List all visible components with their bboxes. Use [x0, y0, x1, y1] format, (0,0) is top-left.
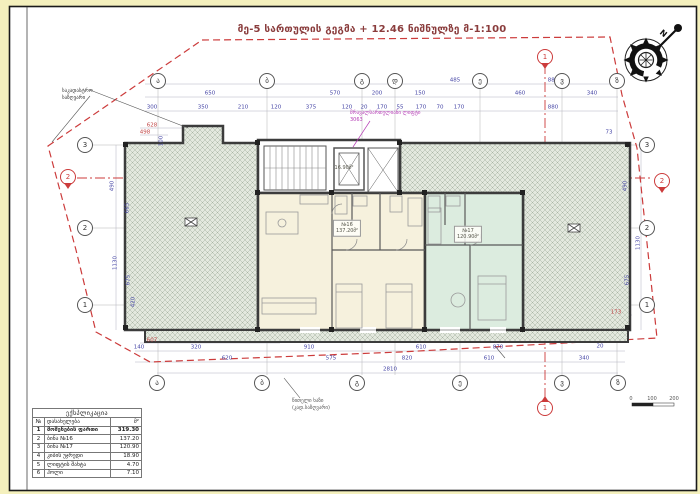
- dimension-label: 880: [548, 105, 559, 111]
- table-row: 4კიბის უჯრედი18.90: [33, 452, 142, 461]
- axis-bubble-ვ: ვ: [554, 73, 570, 89]
- room-area: 16.90მ²: [335, 165, 354, 171]
- table-row: 2ბინა №16137.20: [33, 435, 142, 444]
- table-cell: 2: [33, 435, 45, 444]
- dimension-label: 20: [597, 344, 604, 350]
- axis-bubble-2: 2: [639, 220, 655, 236]
- dimension-label: 150: [415, 91, 426, 97]
- table-title: ექსპლიკაცია: [33, 409, 142, 418]
- room-area: 137.20მ²: [336, 228, 358, 234]
- elevator-note-line2: 3063: [350, 117, 420, 124]
- axis-bubble-3: 3: [639, 137, 655, 153]
- dimension-label: 70: [437, 105, 444, 111]
- dimension-label: 620: [222, 356, 233, 362]
- cadastral-boundary-label: საკადასტრო საზღვარი: [62, 88, 93, 101]
- table-header-area: მ²: [111, 418, 142, 427]
- table-cell: 18.90: [111, 452, 142, 461]
- table-cell: 6: [33, 469, 45, 478]
- axis-bubble-1: 1: [77, 297, 93, 313]
- room-label: 16.90მ²: [333, 164, 356, 172]
- table-header-no: №: [33, 418, 45, 427]
- dimension-label: 1130: [636, 236, 642, 250]
- axis-bubble-2: 2: [77, 220, 93, 236]
- dimension-label: 490: [110, 181, 116, 192]
- red-line-label-line2: (კად.საზღვარი): [292, 405, 330, 412]
- dimension-label: 610: [416, 345, 427, 351]
- dimension-label: 140: [134, 345, 145, 351]
- dimension-label: 1130: [113, 256, 119, 270]
- red-line-label: წითელი ხაზი (კად.საზღვარი): [292, 398, 330, 411]
- dimension-label: 675: [625, 275, 631, 286]
- table-header-name: დასახელება: [45, 418, 111, 427]
- axis-bubble-ე: ე: [472, 73, 488, 89]
- table-cell: 137.20: [111, 435, 142, 444]
- axis-bubble-ე: ე: [452, 375, 468, 391]
- explication-table: ექსპლიკაცია № დასახელება მ² 1მოშენების ფ…: [32, 408, 142, 478]
- axis-bubble-3: 3: [77, 137, 93, 153]
- dimension-label: 170: [416, 105, 427, 111]
- dimension-label: 485: [450, 78, 461, 84]
- axis-bubble-ბ: ბ: [259, 73, 275, 89]
- table-cell: ლიფტის შახტა: [45, 461, 111, 470]
- room-label: №17120.90მ²: [454, 226, 482, 243]
- dimension-label: 340: [579, 356, 590, 362]
- label-overlay: მე-5 სართულის გეგმა + 12.46 ნიშნულზე მ-1…: [0, 0, 700, 494]
- dimension-label: 420: [131, 297, 137, 308]
- table-cell: 120.90: [111, 443, 142, 452]
- dimension-label: 320: [191, 345, 202, 351]
- room-label: №16137.20მ²: [333, 220, 361, 237]
- axis-bubble-ზ: ზ: [609, 73, 625, 89]
- dimension-label: 120: [342, 105, 353, 111]
- dimension-label: 570: [330, 91, 341, 97]
- drawing-title: მე-5 სართულის გეგმა + 12.46 ნიშნულზე მ-1…: [212, 24, 532, 35]
- dimension-label: 665: [125, 203, 131, 214]
- dimension-label: 200: [372, 91, 383, 97]
- section-marker-pointer: [64, 183, 72, 189]
- dimension-label: 607: [147, 338, 158, 344]
- dimension-label: 675: [126, 275, 132, 286]
- dimension-label: 170: [454, 105, 465, 111]
- table-row: 1მოშენების ფართი319.30: [33, 426, 142, 435]
- table-cell: 7.10: [111, 469, 142, 478]
- axis-bubble-ა: ა: [150, 73, 166, 89]
- section-marker-pointer: [541, 396, 549, 402]
- scale-label: 200: [669, 396, 679, 402]
- dimension-label: 300: [147, 105, 158, 111]
- section-marker-pointer: [658, 187, 666, 193]
- dimension-label: 20: [361, 105, 368, 111]
- dimension-label: 73: [606, 130, 613, 136]
- dimension-label: 170: [377, 105, 388, 111]
- dimension-label: 55: [397, 105, 404, 111]
- dimension-label: 910: [304, 345, 315, 351]
- table-cell: 319.30: [111, 426, 142, 435]
- dimension-label: 650: [205, 91, 216, 97]
- axis-bubble-დ: დ: [387, 73, 403, 89]
- dimension-label: 575: [326, 356, 337, 362]
- scale-label: 0: [629, 396, 632, 402]
- dimension-label: 375: [306, 105, 317, 111]
- cadastral-label-line2: საზღვარი: [62, 95, 93, 102]
- elevator-note-line1: მრავალსართულიანი ლიფტი: [350, 110, 420, 117]
- section-marker-2: 2: [654, 173, 670, 189]
- dimension-label: 173: [611, 310, 622, 316]
- table-cell: 3: [33, 443, 45, 452]
- table-cell: კიბის უჯრედი: [45, 452, 111, 461]
- table-cell: მოშენების ფართი: [45, 426, 111, 435]
- table-row: 3ბინა №17120.90: [33, 443, 142, 452]
- section-marker-1: 1: [537, 49, 553, 65]
- axis-bubble-ზ: ზ: [610, 375, 626, 391]
- axis-bubble-ა: ა: [149, 375, 165, 391]
- table-cell: ბინა №16: [45, 435, 111, 444]
- dimension-label: 210: [238, 105, 249, 111]
- dimension-label: 490: [623, 181, 629, 192]
- drawing-sheet: მე-5 სართულის გეგმა + 12.46 ნიშნულზე მ-1…: [0, 0, 700, 494]
- table-row: 6ჰოლი7.10: [33, 469, 142, 478]
- dimension-label: 820: [402, 356, 413, 362]
- dimension-label: 460: [515, 91, 526, 97]
- dimension-label: 498: [140, 130, 151, 136]
- scale-label: 100: [647, 396, 657, 402]
- table-cell: ჰოლი: [45, 469, 111, 478]
- dimension-label: 610: [484, 356, 495, 362]
- cadastral-label-line1: საკადასტრო: [62, 88, 93, 95]
- table-body: 1მოშენების ფართი319.302ბინა №16137.203ბი…: [33, 426, 142, 478]
- table-cell: 4.70: [111, 461, 142, 470]
- section-marker-pointer: [541, 63, 549, 69]
- dimension-label: 120: [271, 105, 282, 111]
- dimension-label: 100: [159, 136, 165, 147]
- room-area: 120.90მ²: [457, 234, 479, 240]
- axis-bubble-1: 1: [639, 297, 655, 313]
- elevator-note: მრავალსართულიანი ლიფტი 3063: [350, 110, 420, 123]
- axis-bubble-ბ: ბ: [254, 375, 270, 391]
- dimension-label: 870: [493, 345, 504, 351]
- table-cell: 4: [33, 452, 45, 461]
- table-cell: 5: [33, 461, 45, 470]
- dimension-label: 628: [147, 123, 158, 129]
- section-marker-2: 2: [60, 169, 76, 185]
- table-row: 5ლიფტის შახტა4.70: [33, 461, 142, 470]
- dimension-label: 350: [198, 105, 209, 111]
- table-cell: ბინა №17: [45, 443, 111, 452]
- dimension-label: 340: [587, 91, 598, 97]
- axis-bubble-ვ: ვ: [554, 375, 570, 391]
- table-cell: 1: [33, 426, 45, 435]
- section-marker-1: 1: [537, 400, 553, 416]
- axis-bubble-გ: გ: [354, 73, 370, 89]
- north-letter: N: [658, 28, 669, 39]
- axis-bubble-გ: გ: [349, 375, 365, 391]
- dimension-label: 2810: [383, 367, 397, 373]
